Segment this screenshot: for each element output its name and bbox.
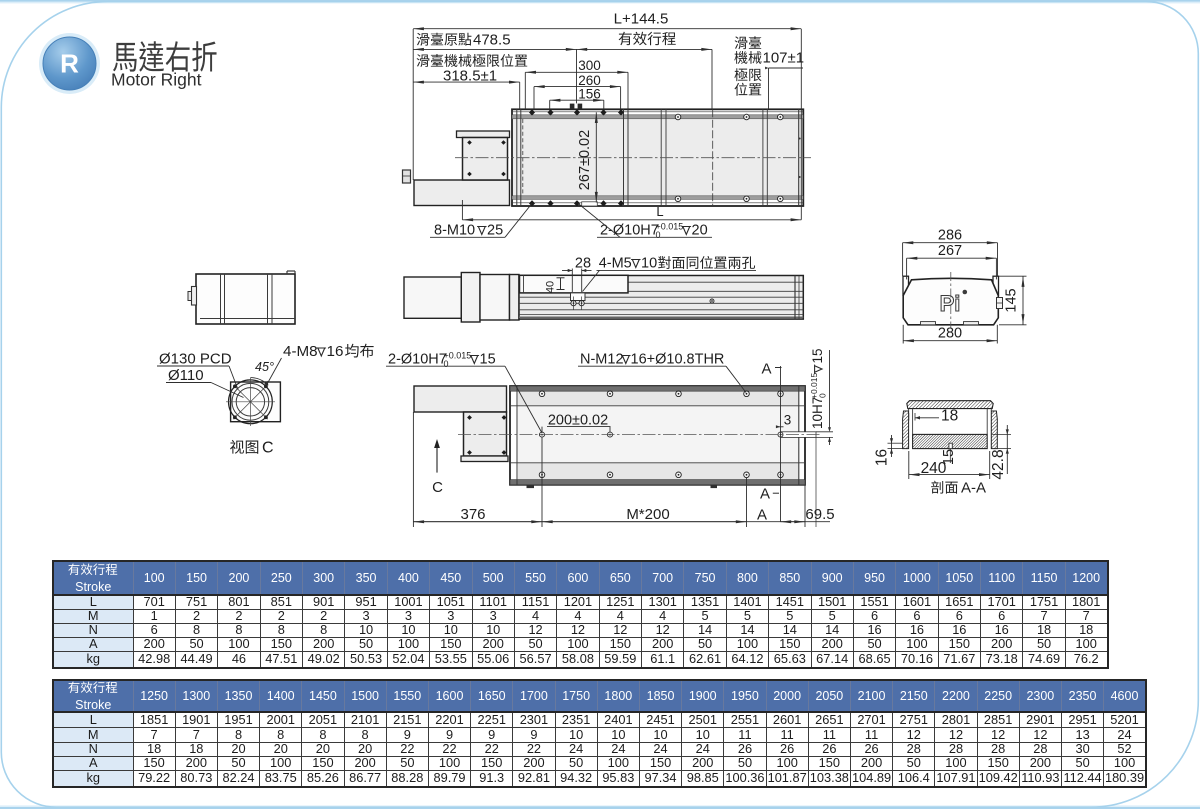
svg-text:42.8: 42.8 <box>990 449 1007 479</box>
svg-text:15: 15 <box>480 352 496 368</box>
svg-text:18: 18 <box>941 407 958 424</box>
svg-text:16+Ø10.8THR: 16+Ø10.8THR <box>631 352 725 368</box>
svg-text:10H7: 10H7 <box>810 397 825 429</box>
svg-text:Pi: Pi <box>940 291 961 316</box>
svg-text:25: 25 <box>487 223 503 239</box>
svg-text:200±0.02: 200±0.02 <box>548 412 608 428</box>
svg-text:4-M8: 4-M8 <box>283 343 318 360</box>
svg-text:8-M10: 8-M10 <box>434 223 475 239</box>
svg-text:Ø110: Ø110 <box>168 367 204 384</box>
svg-text:300: 300 <box>578 58 601 73</box>
svg-text:107±1: 107±1 <box>763 50 805 67</box>
svg-text:267±0.02: 267±0.02 <box>577 130 593 190</box>
svg-text:2-Ø10H7: 2-Ø10H7 <box>600 223 659 239</box>
svg-text:N-M12: N-M12 <box>580 352 624 368</box>
svg-text:R: R <box>60 49 79 79</box>
svg-text:376: 376 <box>460 506 485 523</box>
svg-text:145: 145 <box>1004 288 1020 312</box>
svg-text:C: C <box>262 440 274 457</box>
svg-text:0: 0 <box>656 230 661 240</box>
svg-text:A: A <box>761 361 771 378</box>
svg-text:L+144.5: L+144.5 <box>614 11 669 28</box>
svg-text:286: 286 <box>938 227 962 243</box>
svg-text:C: C <box>432 479 443 496</box>
svg-text:A: A <box>760 486 770 503</box>
svg-text:15: 15 <box>810 348 825 363</box>
svg-text:20: 20 <box>692 223 708 239</box>
svg-text:Ø130 PCD: Ø130 PCD <box>159 351 232 368</box>
svg-text:4-M5: 4-M5 <box>599 256 632 272</box>
svg-text:16: 16 <box>327 343 344 360</box>
svg-text:28: 28 <box>575 256 591 272</box>
svg-text:40: 40 <box>545 281 557 293</box>
svg-text:A: A <box>757 507 767 524</box>
svg-text:15: 15 <box>941 449 957 465</box>
svg-text:M*200: M*200 <box>626 506 669 523</box>
svg-text:10: 10 <box>641 256 657 272</box>
svg-text:0: 0 <box>818 393 828 398</box>
svg-text:0: 0 <box>444 359 449 369</box>
svg-text:16: 16 <box>874 449 891 466</box>
svg-text:Motor Right: Motor Right <box>111 70 202 90</box>
svg-text:156: 156 <box>578 86 601 101</box>
svg-text:280: 280 <box>938 326 962 342</box>
svg-text:69.5: 69.5 <box>805 506 834 523</box>
svg-text:A-A: A-A <box>961 480 986 497</box>
svg-text:45°: 45° <box>255 360 274 374</box>
svg-text:478.5: 478.5 <box>473 32 511 49</box>
svg-text:3: 3 <box>784 412 792 427</box>
svg-text:267: 267 <box>938 243 962 259</box>
svg-text:2-Ø10H7: 2-Ø10H7 <box>388 352 447 368</box>
svg-text:L: L <box>656 204 663 219</box>
